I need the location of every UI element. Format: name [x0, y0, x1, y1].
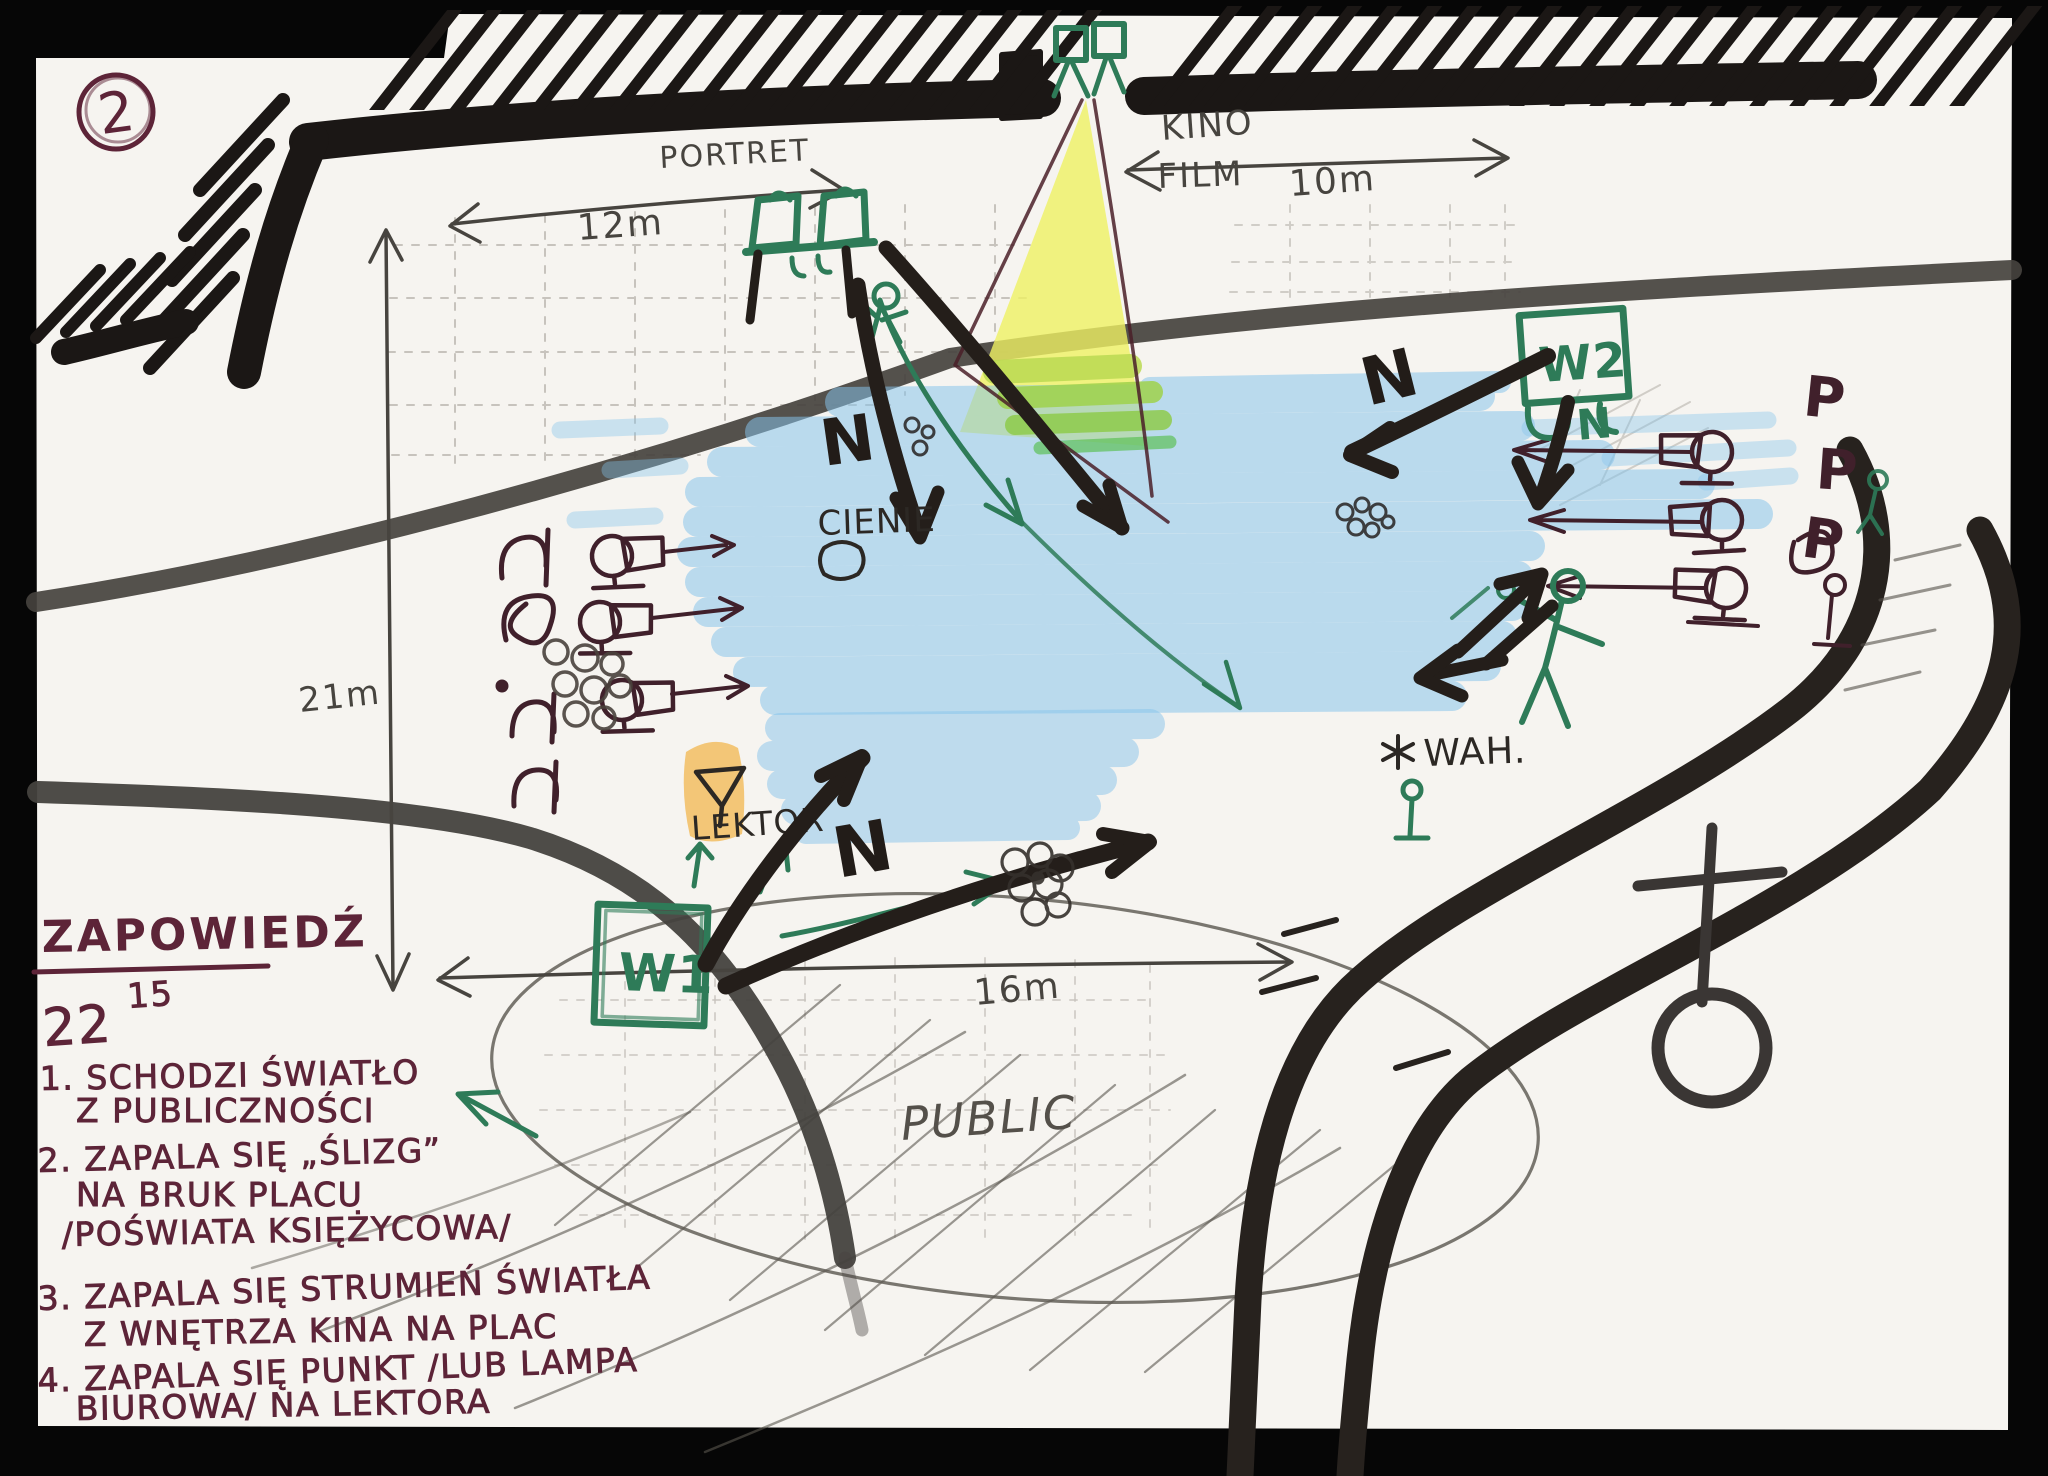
notes-time: 22: [41, 994, 114, 1059]
kino-label: KINO: [1160, 103, 1255, 149]
dim-10m-label: 10m: [1288, 158, 1378, 205]
notes-heading: ZAPOWIEDŹ: [41, 904, 368, 963]
notes-time-sup: 15: [126, 974, 175, 1017]
note-line: /POŚWIATA KSIĘŻYCOWA/: [61, 1206, 512, 1254]
p-marker: P: [1814, 437, 1859, 505]
dim-21m-label: 21m: [297, 673, 383, 721]
n-letter: N: [816, 401, 879, 482]
p-marker: P: [1801, 364, 1849, 433]
note-line: BIUROWA/ NA LEKTORA: [75, 1382, 491, 1428]
wah-label: WAH.: [1423, 728, 1527, 775]
dim-16m-label: 16m: [972, 966, 1062, 1014]
w1-label: W1: [618, 943, 716, 1006]
cienie-label: CIENIE: [817, 500, 937, 544]
note-line: Z PUBLICZNOŚCI: [76, 1090, 375, 1130]
note-line: NA BRUK PLACU: [76, 1175, 363, 1214]
n-letter-green: N: [1575, 398, 1615, 450]
stage-plan-sketch: PORTRET 12m KINO FILM 10m 21m 16m PUBLIC: [0, 0, 2048, 1476]
dim-12m-label: 12m: [576, 202, 666, 249]
film-label: FILM: [1157, 154, 1244, 197]
